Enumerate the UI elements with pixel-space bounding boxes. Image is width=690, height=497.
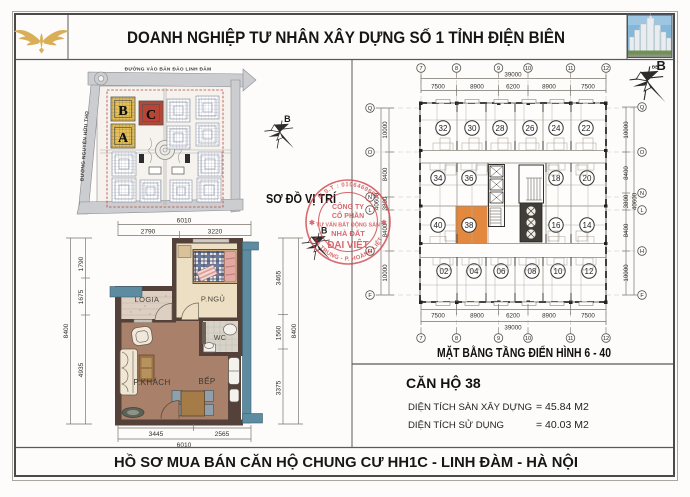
svg-text:LOGIA: LOGIA [135,295,160,304]
svg-text:3375: 3375 [276,380,283,395]
svg-text:40: 40 [434,221,443,230]
svg-text:N: N [640,191,644,197]
svg-text:DIỆN TÍCH SỬ DỤNG: DIỆN TÍCH SỬ DỤNG [408,419,504,431]
svg-text:MẶT BẰNG TẦNG ĐIỂN HÌNH 6 - 40: MẶT BẰNG TẦNG ĐIỂN HÌNH 6 - 40 [437,345,611,360]
svg-text:CÔNG TY: CÔNG TY [332,202,364,211]
svg-text:8900: 8900 [470,313,484,320]
svg-text:8400: 8400 [382,167,389,181]
svg-text:1560: 1560 [276,325,283,340]
svg-text:38: 38 [465,221,474,230]
svg-text:10: 10 [525,66,531,72]
svg-text:7500: 7500 [431,84,445,91]
svg-text:39000: 39000 [504,72,522,79]
svg-text:HỒ SƠ MUA BÁN CĂN HỘ CHUNG CƯ: HỒ SƠ MUA BÁN CĂN HỘ CHUNG CƯ HH1C - LIN… [114,453,578,471]
svg-text:B: B [284,114,291,124]
svg-text:6200: 6200 [506,313,520,320]
svg-text:C: C [146,108,156,123]
svg-text:TƯ VẤN BẤT ĐỘNG SẢN: TƯ VẤN BẤT ĐỘNG SẢN [316,221,380,229]
svg-text:28: 28 [496,124,505,133]
svg-text:34: 34 [434,174,443,183]
svg-text:3465: 3465 [276,270,283,285]
svg-text:10: 10 [525,336,531,342]
svg-text:8900: 8900 [542,84,556,91]
svg-text:9: 9 [497,66,500,72]
svg-text:11: 11 [568,66,574,72]
svg-text:26: 26 [526,124,535,133]
svg-text:4935: 4935 [78,362,85,377]
svg-text:10: 10 [554,267,563,276]
svg-text:3220: 3220 [208,229,223,236]
svg-text:10000: 10000 [623,121,630,139]
svg-text:20: 20 [583,174,592,183]
svg-text:3800: 3800 [623,194,630,208]
svg-text:3445: 3445 [149,431,164,438]
svg-text:A: A [118,131,129,146]
svg-text:8900: 8900 [470,84,484,91]
svg-text:30: 30 [468,124,477,133]
svg-text:B: B [118,104,127,119]
svg-text:8400: 8400 [623,223,630,237]
svg-text:7: 7 [419,336,422,342]
svg-text:12: 12 [603,336,609,342]
svg-text:7500: 7500 [581,313,595,320]
svg-text:8: 8 [455,336,458,342]
svg-text:2565: 2565 [215,431,230,438]
svg-text:16: 16 [552,221,561,230]
svg-text:WC: WC [214,335,226,342]
svg-text:12: 12 [585,267,594,276]
svg-text:8: 8 [455,66,458,72]
svg-text:1675: 1675 [78,289,85,304]
svg-text:02: 02 [440,267,449,276]
svg-text:04: 04 [470,267,479,276]
svg-text:18: 18 [552,174,561,183]
svg-text:✱: ✱ [381,219,387,227]
svg-text:11: 11 [568,336,574,342]
svg-text:CĂN HỘ 38: CĂN HỘ 38 [406,374,481,391]
svg-text:1790: 1790 [78,256,85,271]
svg-text:BẾP: BẾP [198,376,215,386]
svg-text:NHÀ ĐẤT: NHÀ ĐẤT [331,228,365,238]
svg-text:P.NGỦ: P.NGỦ [201,295,225,304]
svg-text:8400: 8400 [291,323,298,338]
svg-text:P.KHÁCH: P.KHÁCH [133,378,170,387]
svg-text:8900: 8900 [542,313,556,320]
svg-text:DOANH NGHIỆP TƯ NHÂN XÂY DỰNG: DOANH NGHIỆP TƯ NHÂN XÂY DỰNG SỐ 1 TỈNH … [127,27,565,47]
svg-text:2790: 2790 [141,229,156,236]
svg-text:9: 9 [497,336,500,342]
svg-text:7500: 7500 [431,313,445,320]
svg-text:10000: 10000 [382,264,389,282]
svg-text:L: L [640,208,643,214]
svg-text:DIỆN TÍCH SÀN XÂY DỰNG: DIỆN TÍCH SÀN XÂY DỰNG [408,402,532,413]
svg-text:6200: 6200 [506,84,520,91]
svg-text:L: L [368,208,371,214]
svg-text:36: 36 [465,174,474,183]
svg-text:= 45.84 M2: = 45.84 M2 [536,401,589,413]
svg-text:Q: Q [368,106,373,112]
svg-text:8400: 8400 [63,323,70,338]
svg-text:22: 22 [582,124,591,133]
svg-text:6010: 6010 [177,218,192,225]
svg-text:40600: 40600 [632,192,639,210]
svg-text:12: 12 [603,66,609,72]
svg-text:B: B [656,58,665,73]
svg-text:7500: 7500 [581,84,595,91]
svg-text:H: H [640,249,644,255]
svg-text:7: 7 [419,66,422,72]
svg-text:10000: 10000 [623,264,630,282]
svg-text:O: O [368,150,373,156]
svg-text:O: O [640,150,645,156]
svg-text:Q: Q [640,105,645,111]
svg-text:10000: 10000 [382,121,389,139]
svg-text:8400: 8400 [623,166,630,180]
svg-text:39000: 39000 [504,325,522,332]
svg-text:ĐẠI VIỆT: ĐẠI VIỆT [327,239,368,251]
svg-text:14: 14 [583,221,592,230]
svg-text:24: 24 [552,124,561,133]
svg-text:✱: ✱ [309,219,315,227]
svg-text:08: 08 [528,267,537,276]
svg-text:32: 32 [439,124,448,133]
svg-text:= 40.03 M2: = 40.03 M2 [536,419,589,431]
